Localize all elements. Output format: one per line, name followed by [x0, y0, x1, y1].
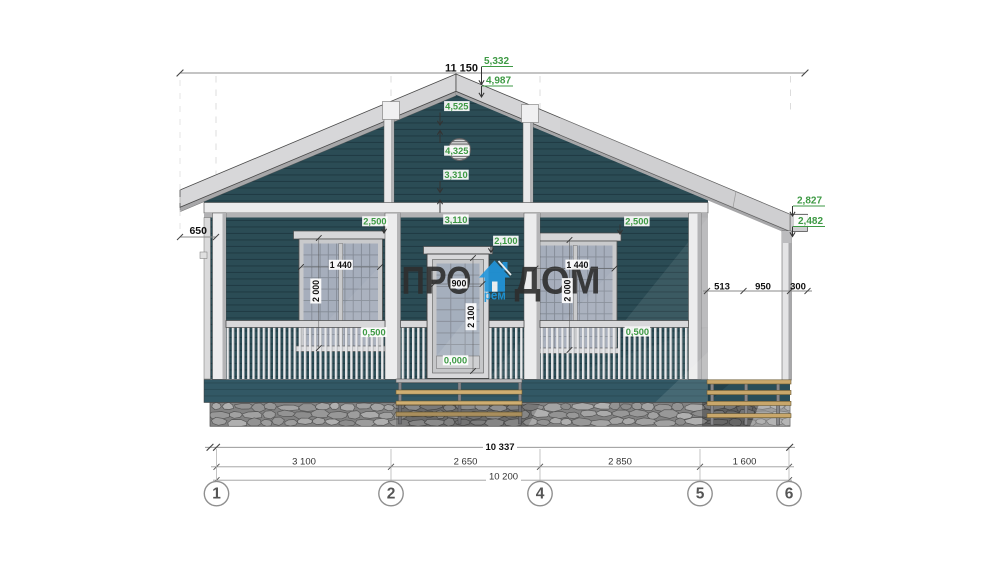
svg-text:513: 513	[714, 282, 730, 293]
svg-text:5: 5	[696, 486, 705, 503]
svg-text:3,310: 3,310	[444, 170, 467, 180]
svg-text:1: 1	[212, 486, 221, 503]
svg-text:2 100: 2 100	[466, 306, 476, 328]
svg-text:2 000: 2 000	[563, 279, 573, 301]
svg-text:2,827: 2,827	[797, 196, 822, 207]
svg-text:1 600: 1 600	[733, 457, 757, 468]
svg-text:950: 950	[755, 282, 771, 293]
svg-text:2,482: 2,482	[798, 216, 823, 227]
svg-text:2 000: 2 000	[311, 280, 321, 302]
svg-text:900: 900	[452, 279, 467, 289]
svg-text:2 650: 2 650	[454, 457, 478, 468]
svg-text:2: 2	[387, 486, 396, 503]
svg-text:4: 4	[536, 486, 545, 503]
svg-text:3,110: 3,110	[445, 215, 468, 225]
svg-text:2,100: 2,100	[494, 236, 517, 246]
svg-text:650: 650	[189, 225, 207, 237]
svg-text:11 150: 11 150	[445, 63, 478, 75]
svg-text:6: 6	[785, 486, 794, 503]
svg-text:5,332: 5,332	[484, 56, 509, 67]
svg-text:2 850: 2 850	[608, 457, 632, 468]
svg-text:1 440: 1 440	[566, 260, 588, 270]
svg-text:4,325: 4,325	[445, 146, 468, 156]
svg-text:4,525: 4,525	[445, 102, 468, 112]
svg-text:10 200: 10 200	[489, 472, 518, 483]
svg-text:рем: рем	[484, 289, 506, 303]
svg-text:4,987: 4,987	[486, 76, 511, 87]
svg-text:0,500: 0,500	[626, 327, 649, 337]
svg-text:2,500: 2,500	[363, 217, 386, 227]
svg-text:1 440: 1 440	[330, 260, 352, 270]
svg-text:2,500: 2,500	[625, 217, 648, 227]
svg-text:0,000: 0,000	[444, 356, 467, 366]
svg-text:10 337: 10 337	[485, 442, 514, 453]
svg-text:3 100: 3 100	[292, 457, 316, 468]
svg-text:0,500: 0,500	[362, 328, 385, 338]
svg-text:300: 300	[790, 282, 806, 293]
